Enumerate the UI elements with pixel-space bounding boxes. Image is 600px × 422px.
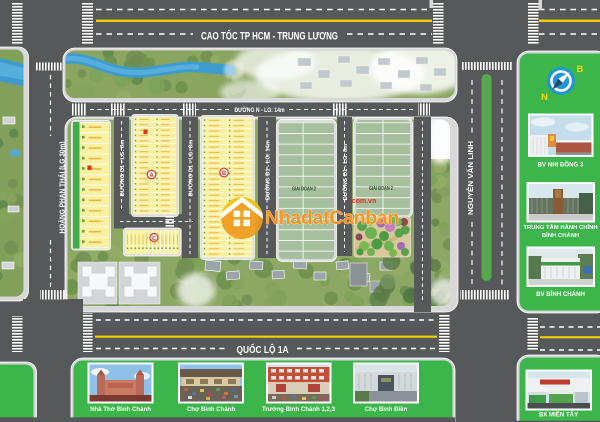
svg-text:NGUYỄN VĂN LINH: NGUYỄN VĂN LINH [466, 141, 475, 215]
svg-text:BV NHI ĐỒNG 3: BV NHI ĐỒNG 3 [538, 162, 584, 169]
svg-text:ĐƯỜNG D1 - LG: 8m: ĐƯỜNG D1 - LG: 8m [341, 144, 349, 201]
svg-text:C: C [152, 236, 156, 242]
svg-text:BÌNH CHÁNH: BÌNH CHÁNH [542, 231, 579, 239]
svg-text:BV BÌNH CHÁNH: BV BÌNH CHÁNH [536, 290, 585, 298]
svg-text:GIAI ĐOẠN 2: GIAI ĐOẠN 2 [369, 186, 393, 192]
svg-text:Chợ Bình Điền: Chợ Bình Điền [365, 406, 408, 413]
svg-text:Nhà Thờ Bình Chánh: Nhà Thờ Bình Chánh [90, 406, 151, 413]
svg-text:TRUNG TÂM HÀNH CHÍNH: TRUNG TÂM HÀNH CHÍNH [523, 223, 597, 231]
svg-text:ĐƯỜNG D1 - LG: 8m: ĐƯỜNG D1 - LG: 8m [118, 140, 126, 197]
svg-text:N: N [541, 92, 548, 103]
svg-text:ĐƯỜNG N - LG: 14m: ĐƯỜNG N - LG: 14m [235, 105, 285, 114]
svg-text:B: B [577, 64, 584, 75]
svg-text:A: A [149, 173, 154, 179]
svg-text:CAO TỐC TP HCM - TRUNG LƯƠNG: CAO TỐC TP HCM - TRUNG LƯƠNG [201, 29, 338, 43]
svg-text:B: B [222, 171, 227, 177]
svg-text:GIAI ĐOẠN 2: GIAI ĐOẠN 2 [292, 187, 316, 193]
svg-text:QUỐC LỘ 1A: QUỐC LỘ 1A [237, 342, 289, 356]
svg-text:NhadatCanban: NhadatCanban [265, 207, 399, 229]
svg-text:ĐƯỜNG D1 - LG: 8m: ĐƯỜNG D1 - LG: 8m [187, 140, 195, 197]
svg-text:BX MIỀN TÂY: BX MIỀN TÂY [539, 412, 578, 419]
svg-text:.com.vn: .com.vn [350, 198, 376, 205]
svg-text:HOÀNG PHAN THÁI (LG 30m): HOÀNG PHAN THÁI (LG 30m) [58, 141, 67, 233]
svg-text:Chợ Bình Chánh: Chợ Bình Chánh [187, 406, 236, 413]
svg-text:ĐƯỜNG D1 - LG: 14m: ĐƯỜNG D1 - LG: 14m [264, 140, 272, 200]
svg-text:Trường Bình Chánh 1,2,3: Trường Bình Chánh 1,2,3 [262, 406, 336, 413]
